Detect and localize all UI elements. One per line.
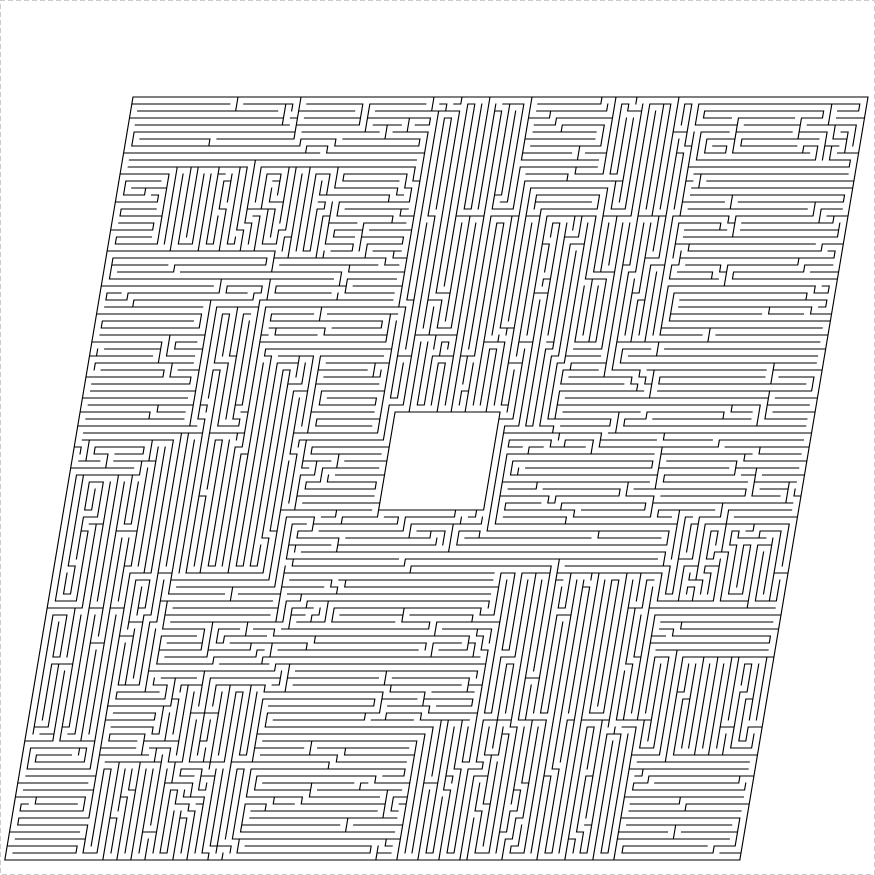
maze-figure xyxy=(0,0,875,875)
maze-canvas xyxy=(0,0,875,875)
